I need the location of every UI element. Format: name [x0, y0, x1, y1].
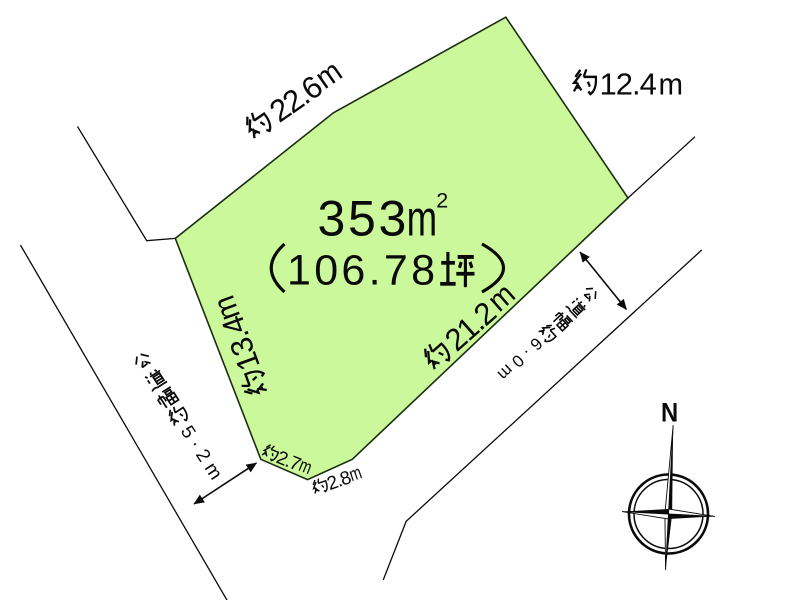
svg-text:12.4: 12.4 — [600, 67, 657, 102]
svg-text:2: 2 — [436, 189, 448, 213]
svg-text:N: N — [661, 398, 678, 428]
svg-text:106.78: 106.78 — [287, 247, 438, 295]
svg-text:m: m — [407, 191, 438, 247]
svg-text:m: m — [659, 68, 684, 102]
svg-text:353: 353 — [318, 191, 410, 247]
